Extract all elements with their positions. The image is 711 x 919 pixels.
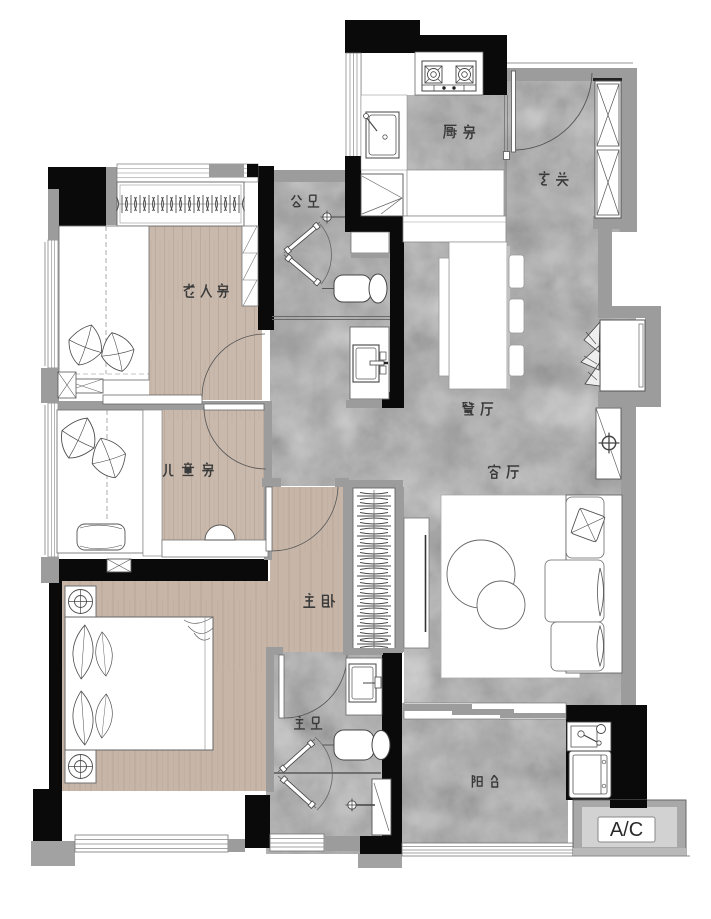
svg-text:A/C: A/C (610, 819, 643, 841)
